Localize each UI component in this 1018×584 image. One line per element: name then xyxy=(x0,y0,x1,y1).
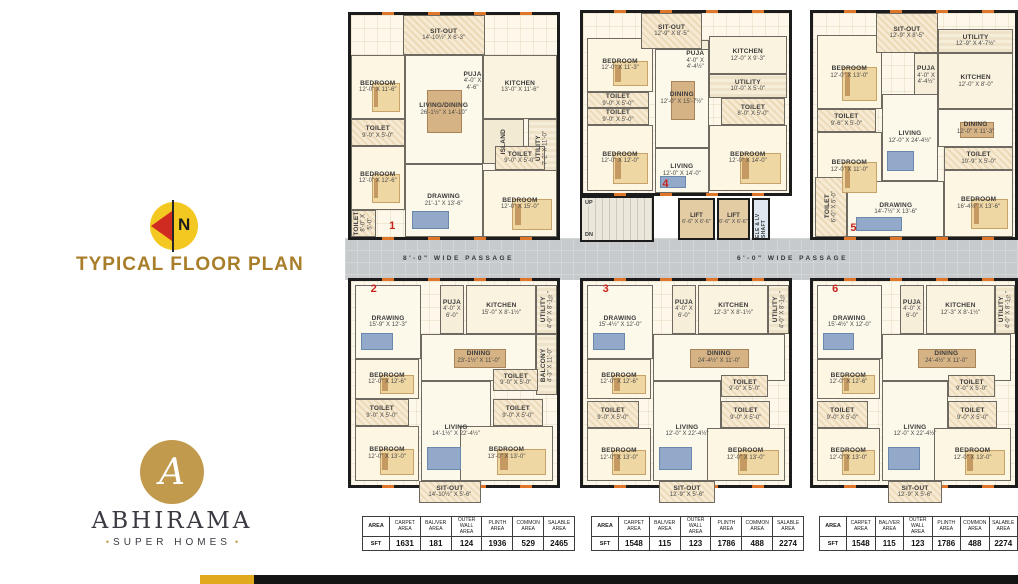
room-dimensions: 12'-0" X 8'-0" xyxy=(958,82,993,89)
corridor-passage: 8'-0" WIDE PASSAGE 6'-0" WIDE PASSAGE xyxy=(345,238,1018,280)
room-dimensions: 4'-0" X 4'-4½" xyxy=(683,58,708,72)
room-dimensions: 12'-0" X 15'-7½" xyxy=(660,99,703,106)
room-dimensions: 12'-9" X 8'-5" xyxy=(654,31,689,38)
room-name: KITCHEN xyxy=(941,302,981,309)
table-value-cell: 1548 xyxy=(619,537,650,551)
room-dimensions: 9'-0" X 5'-0" xyxy=(729,386,760,393)
table-value-cell: SFT xyxy=(820,537,847,551)
room-dimensions: 4'-0" X 8'-1½" xyxy=(1005,291,1012,328)
sofa-icon xyxy=(888,447,920,471)
room-dimensions: 12'-0" X 11'-3" xyxy=(601,65,638,72)
room-dimensions: 9'-0" X 5'-0" xyxy=(730,415,761,422)
unit-number: 5 xyxy=(850,222,856,234)
table-value-cell: 1786 xyxy=(932,537,961,551)
unit-1: SIT-OUT14'-10½" X 6'-3"BEDROOM12'-0" X 1… xyxy=(348,12,560,240)
room-name: LIVING xyxy=(888,130,931,137)
room-bedroom: BEDROOM12'-0" X 13'-0" xyxy=(355,426,419,481)
table-value-cell: 123 xyxy=(680,537,711,551)
room-name: TOILET xyxy=(827,407,858,414)
room-name: BEDROOM xyxy=(488,446,526,453)
lift-1: LIFT 6'-6" X 6'-6" xyxy=(678,198,715,240)
room-kitchen: KITCHEN12'-0" X 8'-0" xyxy=(938,53,1013,109)
room-dimensions: 12'-9" X 5'-6" xyxy=(670,492,705,499)
table-value-cell: SFT xyxy=(363,537,390,551)
room-name: BEDROOM xyxy=(600,447,638,454)
room-dimensions: 12'-9" X 5'-6" xyxy=(898,492,933,499)
table-value-cell: 1936 xyxy=(482,537,513,551)
table-value-cell: 529 xyxy=(513,537,544,551)
floor-plan-page: N TYPICAL FLOOR PLAN A ABHIRAMA •SUPER H… xyxy=(0,0,1018,584)
room-name: BEDROOM xyxy=(368,446,406,453)
table-value-cell: 1548 xyxy=(847,537,876,551)
room-name: TOILET xyxy=(353,211,360,236)
table-value-cell: 488 xyxy=(961,537,990,551)
room-name: TOILET xyxy=(956,379,987,386)
room-dimensions: 12'-0" X 22'-4½" xyxy=(666,431,709,438)
room-dimensions: 4'-0" X 4'-4½" xyxy=(915,73,937,87)
room-name: KITCHEN xyxy=(958,74,993,81)
table-header-cell: AREA xyxy=(363,517,390,537)
room-dimensions: 15'-9" X 12'-3" xyxy=(369,322,407,329)
room-dimensions: 12'-0" X 11'-3" xyxy=(957,129,994,136)
room-name: BEDROOM xyxy=(954,447,992,454)
table-header-cell: AREA xyxy=(820,517,847,537)
footer-accent xyxy=(200,575,254,584)
room-dimensions: 15'-0" X 8'-1½" xyxy=(482,310,522,317)
table-header-row: AREACARPET AREABAL/VER AREAOUTER WALL AR… xyxy=(820,517,1018,537)
room-bedroom: BEDROOM12'-0" X 13'-0" xyxy=(707,428,785,481)
room-kitchen: KITCHEN12'-0" X 9'-3" xyxy=(709,36,787,74)
table-header-cell: CARPET AREA xyxy=(619,517,650,537)
unit-4: SIT-OUT12'-9" X 8'-5"BEDROOM12'-0" X 11'… xyxy=(580,10,792,196)
room-dimensions: 4'-0" X 8'-1½" xyxy=(547,291,554,328)
room-name: BEDROOM xyxy=(601,151,639,158)
table-value-row: SFT154811512317864882274 xyxy=(592,537,804,551)
table-header-cell: CARPET AREA xyxy=(847,517,876,537)
room-utility: UTILITY4'-0" X 8'-1½" xyxy=(536,285,557,334)
room-toilet: TOILET9'-0" X 5'-0" xyxy=(948,401,996,428)
sofa-icon xyxy=(823,333,854,351)
room-dimensions: 4'-3" X 11'-0" xyxy=(547,348,554,382)
room-name: SIT-OUT xyxy=(898,485,933,492)
room-dimensions: 9'-0" X 5'-0" xyxy=(602,117,633,124)
room-dimensions: 12'-0" X 14'-0" xyxy=(729,158,767,165)
room-name: KITCHEN xyxy=(501,80,538,87)
room-toilet: TOILET9'-0" X 5'-0" xyxy=(355,399,409,426)
room-dimensions: 12'-0" X 22'-4½" xyxy=(894,431,937,438)
room-dimensions: 12'-0" X 12'-6" xyxy=(600,379,638,386)
room-dimensions: 12'-0" X 13'-0" xyxy=(954,455,992,462)
room-name: BEDROOM xyxy=(831,159,868,166)
passage-label-left: 8'-0" WIDE PASSAGE xyxy=(403,255,514,262)
room-drawing: DRAWING15'-4½" X 12'-0" xyxy=(587,285,653,358)
sofa-icon xyxy=(427,447,460,471)
table-header-cell: OUTER WALL AREA xyxy=(904,517,933,537)
unit-number: 3 xyxy=(603,283,609,295)
room-toilet: TOILET10'-9" X 5'-0" xyxy=(944,147,1013,169)
room-bedroom: BEDROOM12'-0" X 12'-6" xyxy=(355,359,419,400)
room-bedroom: BEDROOM12'-0" X 12'-6" xyxy=(587,359,651,400)
table-header-cell: OUTER WALL AREA xyxy=(451,517,482,537)
sofa-icon xyxy=(887,151,914,172)
unit-3: DRAWING15'-4½" X 12'-0"PUJA4'-0" X 6'-0"… xyxy=(580,278,792,488)
table-value-cell: 1786 xyxy=(711,537,742,551)
table-header-cell: BAL/VER AREA xyxy=(420,517,451,537)
room-dimensions: 9'-0" X 5'-0" xyxy=(504,158,535,165)
room-name: DRAWING xyxy=(369,315,407,322)
room-name: UTILITY xyxy=(772,291,779,328)
table-value-cell: 2274 xyxy=(989,537,1018,551)
room-dimensions: 12'-0" X 14'-0" xyxy=(663,171,701,178)
unit-5: SIT-OUT12'-9" X 8'-5"BEDROOM12'-0" X 13'… xyxy=(810,10,1018,240)
stair-up-label: UP xyxy=(584,200,594,206)
room-name: BEDROOM xyxy=(830,65,868,72)
room-name: BEDROOM xyxy=(359,171,397,178)
room-sit-out: SIT-OUT14'-10½" X 6'-3" xyxy=(403,15,485,55)
table-value-cell: 488 xyxy=(742,537,773,551)
table-value-row: SFT154811512317864882274 xyxy=(820,537,1018,551)
room-name: UTILITY xyxy=(540,291,547,328)
room-dimensions: 10'-0" X 5'-0" xyxy=(731,86,766,93)
room-name: TOILET xyxy=(729,379,760,386)
room-utility: UTILITY12'-9" X 4'-7½" xyxy=(938,29,1013,54)
room-name: BALCONY xyxy=(540,348,547,382)
passage-label-right: 6'-0" WIDE PASSAGE xyxy=(737,255,848,262)
room-balcony: BALCONY4'-3" X 11'-0" xyxy=(536,334,557,395)
shaft-label: ELE & LV SHAFT xyxy=(755,200,767,238)
room-name: TOILET xyxy=(737,104,768,111)
room-name: DINING xyxy=(698,350,740,357)
table-value-cell: 123 xyxy=(904,537,933,551)
room-dimensions: 23'-1½" X 11'-0" xyxy=(457,358,499,365)
room-bedroom: BEDROOM12'-0" X 13'-0" xyxy=(817,35,882,109)
room-toilet: TOILET9'-0" X 5'-0" xyxy=(817,401,868,428)
room-name: BEDROOM xyxy=(501,197,539,204)
unit-6: DRAWING15'-4½" X 12'-0"PUJA4'-0" X 6'-0"… xyxy=(810,278,1018,488)
room-dimensions: 16'-4½" X 13'-6" xyxy=(957,204,1000,211)
table-header-cell: BAL/VER AREA xyxy=(649,517,680,537)
room-name: BEDROOM xyxy=(600,372,638,379)
unit-number: 1 xyxy=(389,220,395,232)
room-puja: PUJA4'-0" X 6'-0" xyxy=(440,285,465,334)
table-header-cell: AREA xyxy=(592,517,619,537)
room-dimensions: 12'-0" X 12'-0" xyxy=(601,158,639,165)
room-dimensions: 13'-0" X 13'-0" xyxy=(488,454,526,461)
room-utility: UTILITY4'-0" X 8'-1½" xyxy=(768,285,789,334)
table-value-cell: 181 xyxy=(420,537,451,551)
room-dimensions: 12'-0" X 12'-6" xyxy=(368,379,406,386)
room-bedroom: BEDROOM12'-0" X 12'-0" xyxy=(587,125,653,192)
room-name: BEDROOM xyxy=(368,372,406,379)
room-name: TOILET xyxy=(502,405,533,412)
room-name: BEDROOM xyxy=(601,58,638,65)
room-name: PUJA xyxy=(683,50,708,57)
room-name: TOILET xyxy=(500,373,531,380)
room-dimensions: 6'-0" X 5'-0" xyxy=(831,191,838,222)
room-bedroom: BEDROOM12'-0" X 13'-0" xyxy=(587,428,651,481)
room-dimensions: 12'-0" X 24'-4½" xyxy=(888,138,931,145)
table-value-row: SFT163118112419365292465 xyxy=(363,537,575,551)
room-dimensions: 14'-10½" X 6'-3" xyxy=(422,35,465,42)
room-name: BEDROOM xyxy=(957,196,1000,203)
room-toilet: TOILET9'-0" X 5'-0" xyxy=(351,119,405,146)
room-name: SIT-OUT xyxy=(654,24,689,31)
room-dimensions: 10'-9" X 5'-0" xyxy=(961,159,996,166)
table-header-cell: PLINTH AREA xyxy=(482,517,513,537)
room-toilet: TOILET9'-0" X 5'-0" xyxy=(587,92,649,108)
room-name: UTILITY xyxy=(731,79,766,86)
room-toilet: TOILET9'-0" X 5'-0" xyxy=(587,401,639,428)
table-header-cell: COMMON AREA xyxy=(513,517,544,537)
room-bedroom: BEDROOM12'-0" X 11'-6" xyxy=(351,55,405,119)
room-bedroom: BEDROOM12'-0" X 12'-6" xyxy=(351,146,405,210)
table-header-cell: BAL/VER AREA xyxy=(875,517,904,537)
room-kitchen: KITCHEN12'-3" X 8'-1½" xyxy=(926,285,995,334)
room-name: PUJA xyxy=(915,65,937,72)
room-drawing: DRAWING15'-9" X 12'-3" xyxy=(355,285,421,358)
room-toilet: TOILET9'-0" X 5'-0" xyxy=(493,399,542,426)
room-living: LIVING12'-0" X 24'-4½" xyxy=(882,94,939,181)
room-dimensions: 12'-0" X 13'-0" xyxy=(727,455,765,462)
table-header-cell: PLINTH AREA xyxy=(932,517,961,537)
room-name: BEDROOM xyxy=(829,447,867,454)
room-toilet: TOILET9'-6" X 5'-0" xyxy=(817,109,876,131)
table-header-cell: CARPET AREA xyxy=(390,517,421,537)
room-name: LIVING/DINING xyxy=(419,102,468,109)
room-dimensions: 12'-0" X 11'-0" xyxy=(831,167,868,174)
room-dimensions: 9'-0" X 5'-0" xyxy=(827,415,858,422)
table-header-row: AREACARPET AREABAL/VER AREAOUTER WALL AR… xyxy=(592,517,804,537)
room-dimensions: 7'-2" X 11'-0" xyxy=(543,131,550,165)
table-value-cell: 124 xyxy=(451,537,482,551)
room-name: KITCHEN xyxy=(714,302,754,309)
room-name: BEDROOM xyxy=(727,447,765,454)
room-dimensions: 9'-6" X 5'-0" xyxy=(831,121,862,128)
room-kitchen: KITCHEN13'-0" X 11'-6" xyxy=(483,55,557,119)
table-value-cell: 115 xyxy=(649,537,680,551)
room-sit-out: SIT-OUT12'-9" X 5'-6" xyxy=(888,481,943,503)
room-dimensions: 14'-10½" X 5'-6" xyxy=(428,492,471,499)
room-name: TOILET xyxy=(602,93,633,100)
room-name: DRAWING xyxy=(425,193,463,200)
room-name: TOILET xyxy=(366,405,397,412)
room-dimensions: 12'-0" X 11'-6" xyxy=(359,87,396,94)
room-name: BEDROOM xyxy=(829,372,867,379)
unit-number: 4 xyxy=(662,178,668,190)
room-name: DINING xyxy=(457,350,499,357)
room-utility: UTILITY4'-0" X 8'-1½" xyxy=(995,285,1015,334)
room-dimensions: 12'-0" X 12'-6" xyxy=(829,379,867,386)
room-name: TOILET xyxy=(602,109,633,116)
room-dimensions: 9'-0" X 5'-0" xyxy=(502,413,533,420)
sofa-icon xyxy=(361,333,392,351)
table-value-cell: 115 xyxy=(875,537,904,551)
room-name: TOILET xyxy=(831,113,862,120)
room-toilet: TOILET9'-0" X 5'-0" xyxy=(587,108,649,124)
room-puja: PUJA4'-0" X 6'-0" xyxy=(672,285,697,334)
unit-number: 2 xyxy=(371,283,377,295)
room-drawing: DRAWING15'-4½" X 12'-0" xyxy=(817,285,882,358)
room-name: DINING xyxy=(660,91,703,98)
elevator-shaft: ELE & LV SHAFT xyxy=(752,198,770,240)
room-dimensions: 12'-0" X 13'-0" xyxy=(600,455,638,462)
room-dimensions: 12'-0" X 13'-0" xyxy=(830,73,868,80)
room-bedroom: BEDROOM12'-0" X 13'-0" xyxy=(934,428,1011,481)
room-kitchen: KITCHEN15'-0" X 8'-1½" xyxy=(466,285,536,334)
room-toilet: TOILET9'-0" X 5'-0" xyxy=(948,375,994,397)
room-dimensions: 14'-7½" X 13'-6" xyxy=(874,209,917,216)
room-name: TOILET xyxy=(597,407,628,414)
room-name: DRAWING xyxy=(599,315,642,322)
room-name: KITCHEN xyxy=(482,302,522,309)
room-dimensions: 8'-0" X 5'-0" xyxy=(737,111,768,118)
table-header-cell: SALABLE AREA xyxy=(989,517,1018,537)
room-name: DRAWING xyxy=(828,315,871,322)
room-dining: DINING12'-0" X 11'-3" xyxy=(938,109,1013,147)
room-dimensions: 4'-0" X 6'-0" xyxy=(673,306,696,320)
floor-plan: 8'-0" WIDE PASSAGE 6'-0" WIDE PASSAGE UP… xyxy=(0,0,1018,584)
room-dimensions: 9'-0" X 5'-0" xyxy=(957,415,988,422)
room-dimensions: 12'-3" X 8'-1½" xyxy=(714,310,754,317)
room-dimensions: 15'-4½" X 12'-0" xyxy=(599,322,642,329)
room-bedroom: BEDROOM12'-0" X 13'-0" xyxy=(817,428,880,481)
room-toilet: TOILET8'-0" X 5'-0" xyxy=(721,98,785,125)
area-table-right: AREACARPET AREABAL/VER AREAOUTER WALL AR… xyxy=(819,516,1018,551)
table-header-cell: SALABLE AREA xyxy=(544,517,575,537)
room-sit-out: SIT-OUT12'-9" X 8'-5" xyxy=(876,13,939,53)
room-toilet: TOILET8'-0" X 5'-0" xyxy=(351,210,376,237)
room-dimensions: 12'-0" X 12'-6" xyxy=(359,178,397,185)
room-dimensions: 8'-0" X 5'-0" xyxy=(360,211,374,236)
room-dimensions: 9'-0" X 5'-0" xyxy=(597,415,628,422)
room-dimensions: 24'-4½" X 11'-0" xyxy=(925,358,967,365)
room-name: PUJA xyxy=(441,299,464,306)
sofa-icon xyxy=(412,211,449,229)
room-dimensions: 12'-3" X 8'-1½" xyxy=(941,310,981,317)
room-dimensions: 9'-0" X 5'-0" xyxy=(500,380,531,387)
table-value-cell: 1631 xyxy=(390,537,421,551)
room-dimensions: 9'-0" X 5'-0" xyxy=(362,133,393,140)
room-puja: PUJA4'-0" X 4'-4½" xyxy=(914,53,938,98)
room-kitchen: KITCHEN12'-3" X 8'-1½" xyxy=(698,285,768,334)
room-dimensions: 24'-4½" X 11'-0" xyxy=(698,358,740,365)
room-name: TOILET xyxy=(957,407,988,414)
room-dimensions: 12'-0" X 15'-0" xyxy=(501,204,539,211)
room-dimensions: 26'-1½" X 14'-10" xyxy=(419,110,468,117)
room-toilet: TOILET9'-0" X 5'-0" xyxy=(721,375,768,397)
lift-2: LIFT 6'-6" X 6'-6" xyxy=(717,198,750,240)
room-name: LIVING xyxy=(663,163,701,170)
room-bedroom: BEDROOM12'-0" X 15'-0" xyxy=(483,170,557,237)
table-value-cell: SFT xyxy=(592,537,619,551)
room-dimensions: 12'-0" X 13'-0" xyxy=(829,455,867,462)
lift-dims: 6'-6" X 6'-6" xyxy=(719,219,748,225)
room-dimensions: 9'-0" X 5'-0" xyxy=(602,101,633,108)
room-name: PUJA xyxy=(673,299,696,306)
room-dimensions: 13'-0" X 11'-6" xyxy=(501,87,538,94)
room-name: TOILET xyxy=(824,191,831,222)
room-sit-out: SIT-OUT14'-10½" X 5'-6" xyxy=(419,481,481,503)
room-name: DINING xyxy=(957,121,994,128)
sofa-icon xyxy=(659,447,691,471)
room-utility: UTILITY10'-0" X 5'-0" xyxy=(709,74,787,97)
table-header-cell: PLINTH AREA xyxy=(711,517,742,537)
room-name: SIT-OUT xyxy=(670,485,705,492)
room-dimensions: 12'-0" X 13'-0" xyxy=(368,454,406,461)
room-name: TOILET xyxy=(961,151,996,158)
room-name: BEDROOM xyxy=(729,151,767,158)
room-dimensions: 15'-4½" X 12'-0" xyxy=(828,322,871,329)
area-table-left: AREACARPET AREABAL/VER AREAOUTER WALL AR… xyxy=(362,516,575,551)
room-dimensions: 12'-0" X 9'-3" xyxy=(731,56,766,63)
room-name: TOILET xyxy=(730,407,761,414)
room-name: PUJA xyxy=(901,299,923,306)
room-name: KITCHEN xyxy=(731,48,766,55)
staircase: UP DN xyxy=(580,196,654,242)
unit-2: DRAWING15'-9" X 12'-3"PUJA4'-0" X 6'-0"K… xyxy=(348,278,560,488)
room-dimensions: 9'-0" X 5'-0" xyxy=(366,413,397,420)
sofa-icon xyxy=(593,333,624,351)
unit-number: 6 xyxy=(832,283,838,295)
stair-dn-label: DN xyxy=(584,232,594,238)
room-dimensions: 4'-0" X 8'-1½" xyxy=(779,291,786,328)
room-sit-out: SIT-OUT12'-9" X 5'-6" xyxy=(659,481,715,503)
table-header-cell: SALABLE AREA xyxy=(773,517,804,537)
area-table-middle: AREACARPET AREABAL/VER AREAOUTER WALL AR… xyxy=(591,516,804,551)
room-name: TOILET xyxy=(362,125,393,132)
room-dimensions: 4'-0" X 6'-0" xyxy=(901,306,923,320)
table-header-cell: OUTER WALL AREA xyxy=(680,517,711,537)
room-dimensions: 12'-9" X 4'-7½" xyxy=(956,41,996,48)
table-value-cell: 2465 xyxy=(544,537,575,551)
room-drawing: DRAWING21'-1" X 13'-6" xyxy=(405,164,483,237)
room-name: PUJA xyxy=(463,71,482,78)
room-name: UTILITY xyxy=(998,291,1005,328)
table-header-row: AREACARPET AREABAL/VER AREAOUTER WALL AR… xyxy=(363,517,575,537)
room-dimensions: 4'-0" X 4'-6" xyxy=(463,78,482,92)
sofa-icon xyxy=(856,217,902,231)
room-toilet: TOILET9'-0" X 5'-0" xyxy=(493,369,538,391)
room-dimensions: 4'-0" X 6'-0" xyxy=(441,306,464,320)
room-bedroom: BEDROOM12'-0" X 14'-0" xyxy=(709,125,787,192)
room-name: DINING xyxy=(925,350,967,357)
table-header-cell: COMMON AREA xyxy=(742,517,773,537)
room-bedroom: BEDROOM12'-0" X 12'-6" xyxy=(817,359,880,400)
room-name: TOILET xyxy=(504,151,535,158)
room-toilet: TOILET9'-0" X 5'-0" xyxy=(721,401,770,428)
room-dimensions: 14'-1½" X 22'-4½" xyxy=(432,431,480,438)
room-puja: PUJA4'-0" X 6'-0" xyxy=(900,285,924,334)
room-dimensions: 9'-0" X 5'-0" xyxy=(956,386,987,393)
room-sit-out: SIT-OUT12'-9" X 8'-5" xyxy=(641,13,703,49)
footer-bar xyxy=(200,575,1018,584)
room-dimensions: 12'-9" X 8'-5" xyxy=(890,33,925,40)
room-name: SIT-OUT xyxy=(890,26,925,33)
room-name: BEDROOM xyxy=(359,80,396,87)
table-value-cell: 2274 xyxy=(773,537,804,551)
room-dimensions: 21'-1" X 13'-6" xyxy=(425,201,463,208)
lift-dims: 6'-6" X 6'-6" xyxy=(682,219,711,225)
table-header-cell: COMMON AREA xyxy=(961,517,990,537)
room-bedroom: BEDROOM16'-4½" X 13'-6" xyxy=(944,170,1013,237)
